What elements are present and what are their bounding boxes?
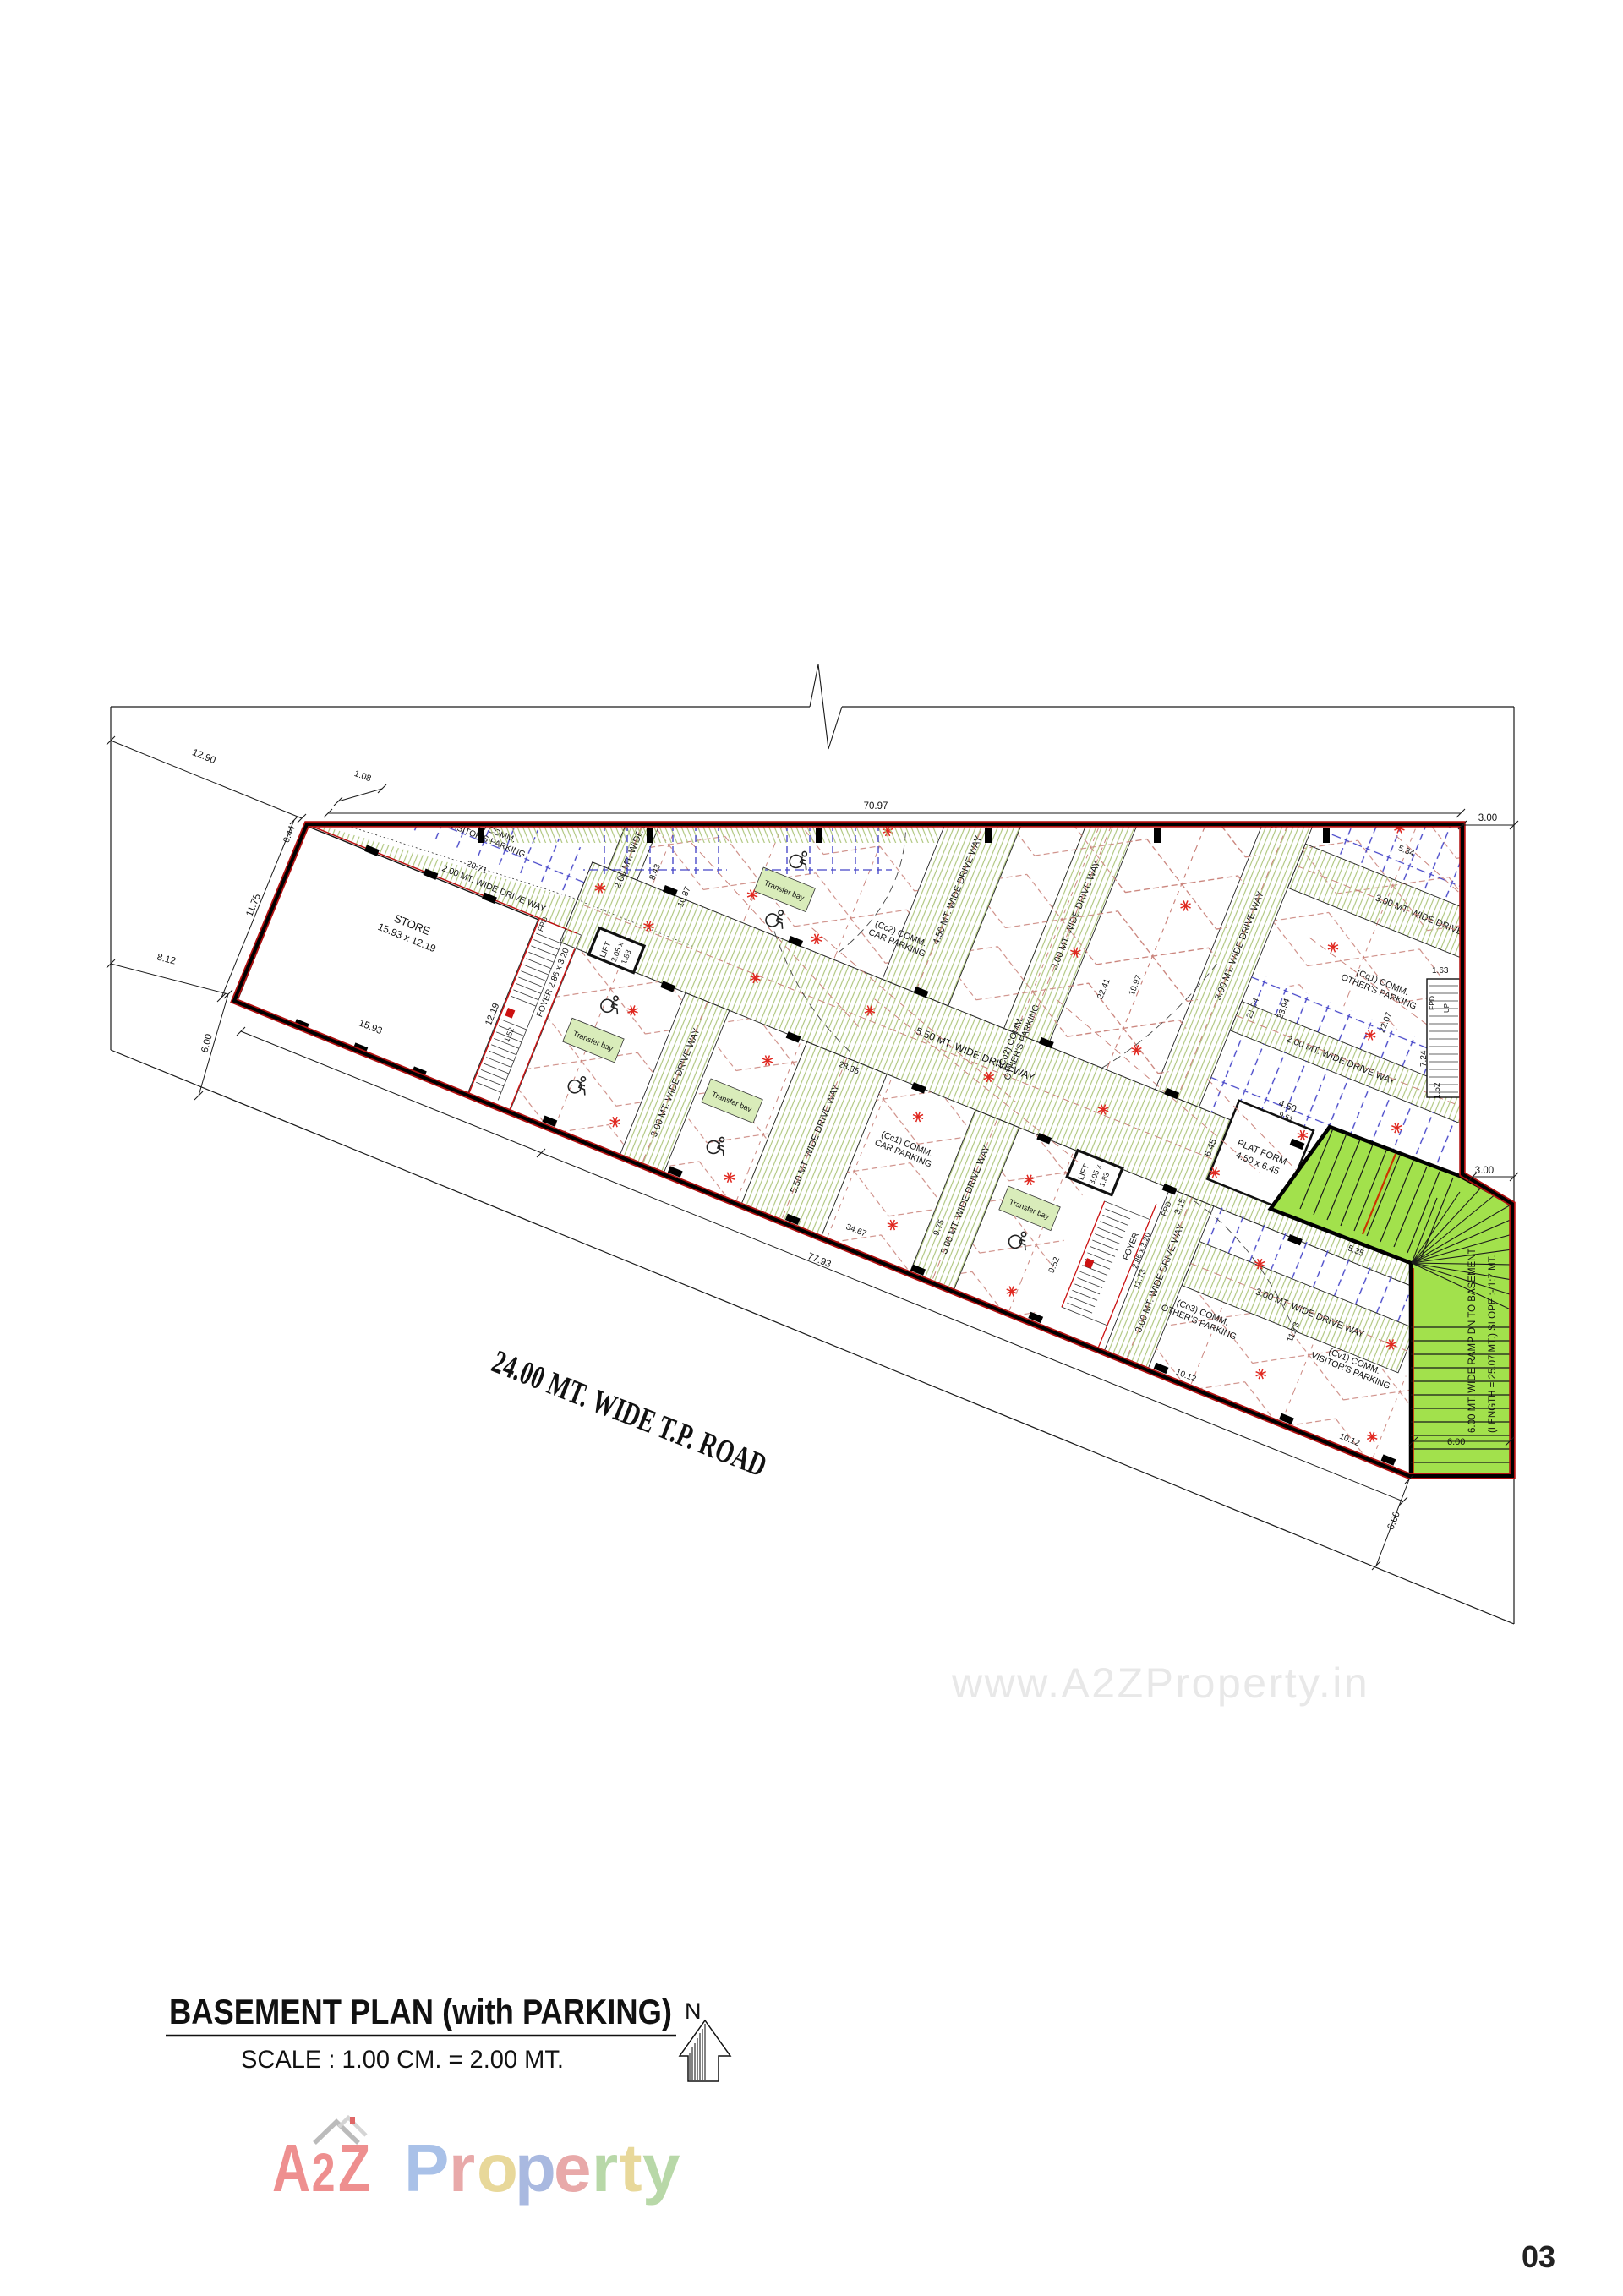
svg-text:1.63: 1.63 [1432,966,1449,976]
svg-text:A: A [272,2131,310,2206]
svg-text:3.00: 3.00 [1475,1166,1494,1176]
svg-text:7.24: 7.24 [1419,1050,1429,1067]
svg-text:P: P [404,2130,449,2206]
svg-text:(LENGTH = 25.07 MT.) SLOPE :-: (LENGTH = 25.07 MT.) SLOPE :- 1:7 MT. [1488,1255,1498,1433]
svg-text:6.00 MT. WIDE RAMP DN TO BASEM: 6.00 MT. WIDE RAMP DN TO BASEMENT [1467,1248,1478,1433]
svg-text:UP: UP [1443,1003,1451,1013]
svg-text:y: y [642,2130,680,2206]
svg-text:3.00: 3.00 [1478,813,1497,823]
svg-text:2: 2 [312,2143,336,2203]
svg-text:SCALE : 1.00 CM. = 2.00 MT.: SCALE : 1.00 CM. = 2.00 MT. [241,2046,564,2074]
svg-text:BASEMENT PLAN (with PARKING): BASEMENT PLAN (with PARKING) [169,1992,672,2031]
svg-text:6.00: 6.00 [1447,1437,1465,1447]
svg-text:1.52: 1.52 [1433,1082,1442,1099]
svg-text:e: e [554,2130,592,2206]
svg-text:FPD: FPD [1428,996,1436,1010]
svg-text:r: r [592,2130,618,2206]
svg-text:N: N [685,1998,702,2024]
svg-text:o: o [477,2130,518,2206]
svg-text:r: r [449,2130,475,2206]
svg-text:p: p [515,2130,556,2206]
svg-text:www.A2ZProperty.in: www.A2ZProperty.in [951,1659,1369,1707]
svg-text:t: t [620,2130,642,2206]
svg-text:70.97: 70.97 [864,801,888,812]
svg-text:03: 03 [1522,2239,1555,2274]
